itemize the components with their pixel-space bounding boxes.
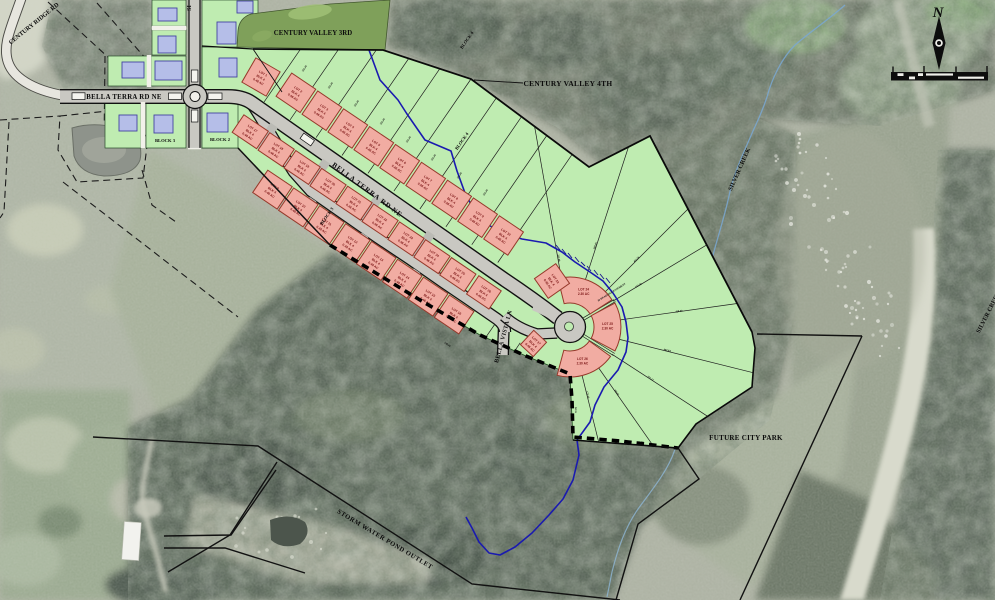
svg-text:2.30 AC: 2.30 AC — [577, 362, 589, 366]
svg-text:92.15: 92.15 — [574, 407, 577, 414]
svg-text:LOT 26: LOT 26 — [577, 357, 588, 361]
svg-text:2.30 AC: 2.30 AC — [578, 292, 590, 296]
svg-text:CENTURY VALLEY 4TH: CENTURY VALLEY 4TH — [524, 79, 613, 88]
svg-text:2.30 AC: 2.30 AC — [602, 327, 614, 331]
svg-text:LOT 25: LOT 25 — [602, 322, 613, 326]
svg-text:BLOCK 3: BLOCK 3 — [155, 138, 176, 143]
svg-text:BELLA TERRA RD NE: BELLA TERRA RD NE — [86, 94, 162, 101]
svg-text:FUTURE CITY PARK: FUTURE CITY PARK — [709, 434, 783, 442]
svg-text:LOT 24: LOT 24 — [578, 288, 589, 292]
svg-text:SI: SI — [187, 4, 193, 10]
svg-text:BLOCK 2: BLOCK 2 — [210, 137, 231, 142]
svg-text:CENTURY VALLEY 3RD: CENTURY VALLEY 3RD — [274, 30, 353, 37]
svg-text:N: N — [932, 5, 945, 21]
